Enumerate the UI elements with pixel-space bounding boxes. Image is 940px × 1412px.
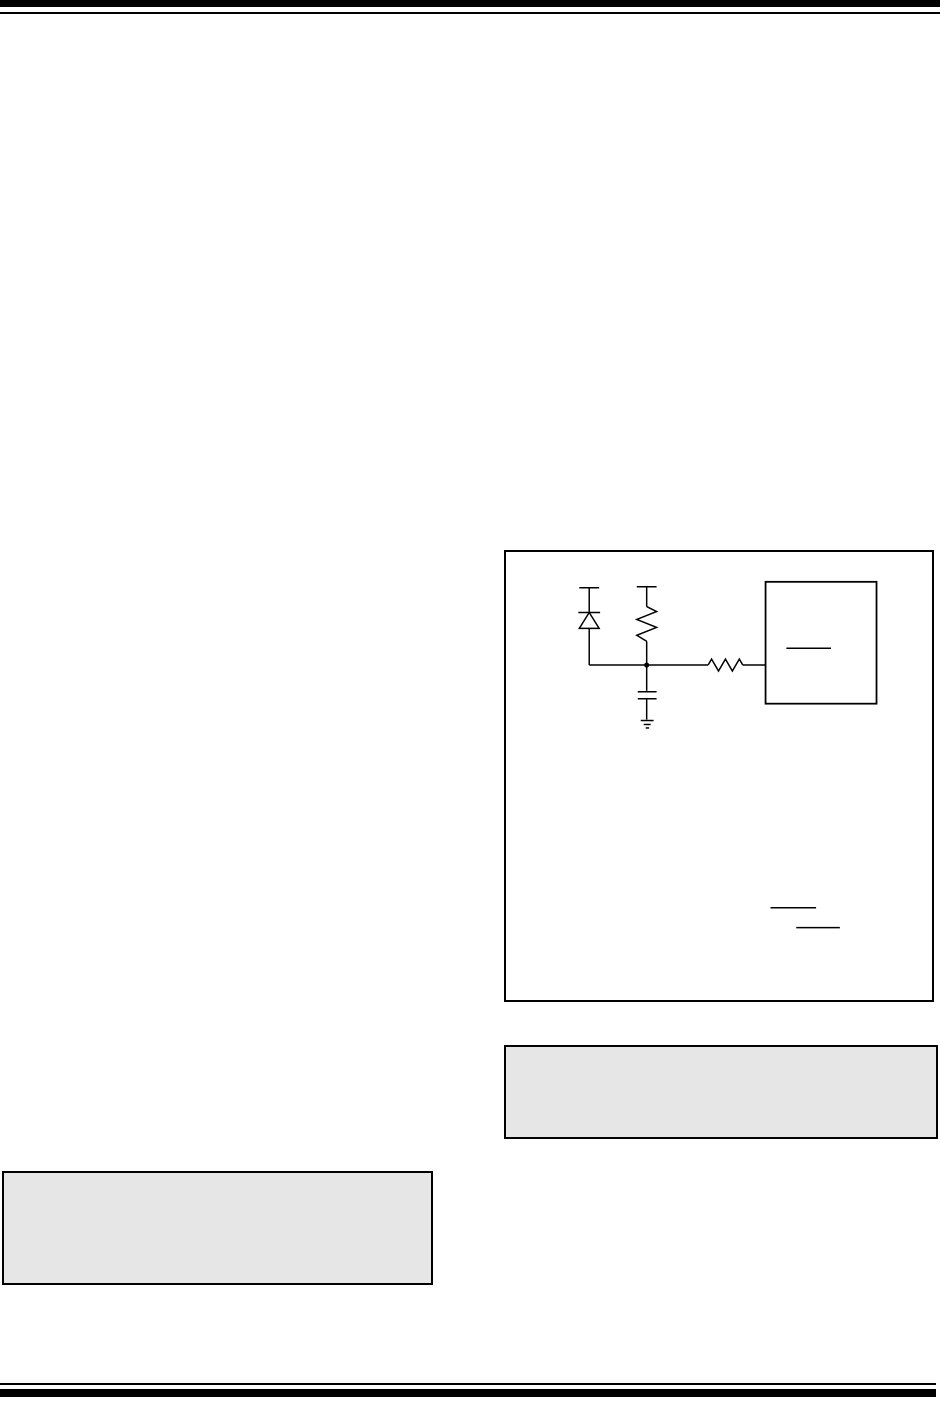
ground-symbol	[641, 721, 654, 728]
top-thick-rule	[0, 0, 940, 7]
capacitor	[638, 665, 657, 719]
series-resistor	[708, 659, 765, 671]
figure-frame	[504, 550, 934, 1002]
supply-tick-resistor	[637, 587, 657, 607]
document-page	[0, 0, 940, 1412]
note-box-left	[2, 1171, 433, 1285]
bottom-thin-rule	[0, 1383, 936, 1385]
supply-tick-diode	[579, 588, 599, 613]
ic-box	[766, 582, 877, 704]
note-box-right	[504, 1045, 938, 1139]
pullup-resistor	[637, 607, 657, 665]
diode	[578, 613, 600, 666]
bottom-thick-rule	[0, 1389, 936, 1397]
mclr-circuit-diagram	[506, 552, 932, 1000]
top-thin-rule	[0, 12, 940, 14]
